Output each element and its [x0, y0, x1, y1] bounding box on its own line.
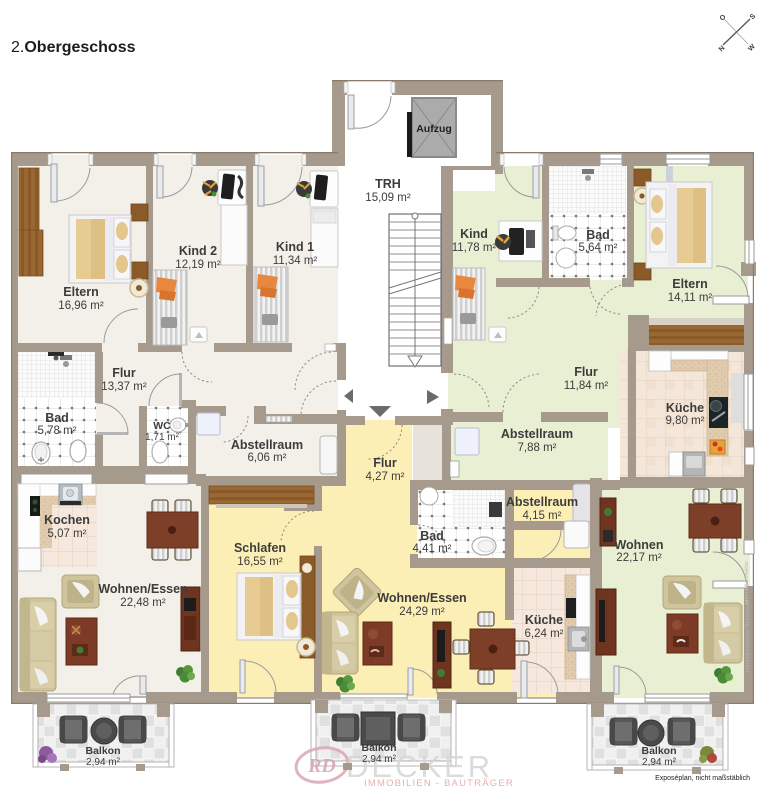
svg-text:Kind 1: Kind 1: [276, 240, 314, 254]
svg-text:Abstellraum: Abstellraum: [501, 427, 573, 441]
svg-text:Bad: Bad: [420, 529, 444, 543]
svg-text:Aufzug: Aufzug: [416, 123, 452, 135]
svg-text:Balkon: Balkon: [361, 742, 396, 754]
svg-text:5,64 m²: 5,64 m²: [579, 242, 618, 254]
svg-text:15,09 m²: 15,09 m²: [365, 192, 411, 204]
svg-text:TRH: TRH: [375, 177, 401, 191]
svg-text:2,94 m²: 2,94 m²: [642, 757, 677, 768]
svg-text:Wohnen: Wohnen: [614, 538, 663, 552]
svg-text:16,96 m²: 16,96 m²: [58, 300, 104, 312]
svg-text:Wohnen/Essen: Wohnen/Essen: [377, 591, 466, 605]
svg-text:Schlafen: Schlafen: [234, 541, 286, 555]
svg-text:24,29 m²: 24,29 m²: [399, 606, 445, 618]
svg-text:6,06 m²: 6,06 m²: [248, 452, 287, 464]
svg-text:2,94 m²: 2,94 m²: [86, 757, 121, 768]
svg-text:13,37 m²: 13,37 m²: [101, 381, 147, 393]
svg-text:1,71 m²: 1,71 m²: [145, 432, 180, 443]
svg-text:Kind 2: Kind 2: [179, 244, 217, 258]
svg-text:22,48 m²: 22,48 m²: [120, 597, 166, 609]
svg-text:WC: WC: [153, 420, 171, 432]
svg-text:Bad: Bad: [45, 411, 69, 425]
svg-text:6,24 m²: 6,24 m²: [525, 628, 564, 640]
svg-text:Abstellraum: Abstellraum: [506, 495, 578, 509]
svg-text:4,41 m²: 4,41 m²: [413, 543, 452, 555]
svg-text:Balkon: Balkon: [641, 745, 676, 757]
svg-text:2,94 m²: 2,94 m²: [362, 754, 397, 765]
svg-text:Küche: Küche: [666, 401, 704, 415]
svg-text:Flur: Flur: [373, 456, 397, 470]
svg-text:Eltern: Eltern: [63, 285, 98, 299]
svg-text:Kind: Kind: [460, 227, 488, 241]
svg-text:22,17 m²: 22,17 m²: [616, 552, 662, 564]
svg-text:9,80 m²: 9,80 m²: [666, 415, 705, 427]
svg-text:16,55 m²: 16,55 m²: [237, 556, 283, 568]
svg-text:Flur: Flur: [574, 365, 598, 379]
svg-text:4,27 m²: 4,27 m²: [366, 471, 405, 483]
svg-text:14,11 m²: 14,11 m²: [668, 292, 713, 304]
svg-text:11,34 m²: 11,34 m²: [273, 255, 318, 267]
svg-text:12,19 m²: 12,19 m²: [175, 259, 221, 271]
svg-text:11,78 m²: 11,78 m²: [452, 242, 497, 254]
svg-text:RD: RD: [307, 755, 336, 777]
svg-text:Exposéplan, nicht maßstäblich: Exposéplan, nicht maßstäblich: [655, 775, 750, 782]
svg-text:IMMOBILIEN - BAUTRÄGER: IMMOBILIEN - BAUTRÄGER: [364, 778, 514, 789]
svg-text:7,88 m²: 7,88 m²: [518, 442, 557, 454]
svg-text:2.Obergeschoss: 2.Obergeschoss: [11, 39, 136, 56]
svg-text:Abstellraum: Abstellraum: [231, 438, 303, 452]
svg-text:11,84 m²: 11,84 m²: [564, 380, 609, 392]
svg-text:Kochen: Kochen: [44, 513, 90, 527]
svg-text:Immobilienmakler Rottenburg: Immobilienmakler Rottenburg: [745, 600, 751, 672]
svg-text:4,15 m²: 4,15 m²: [523, 510, 562, 522]
svg-text:Bad: Bad: [586, 228, 610, 242]
svg-text:Wohnen/Essen: Wohnen/Essen: [98, 582, 187, 596]
svg-text:Küche: Küche: [525, 613, 563, 627]
svg-text:Flur: Flur: [112, 366, 136, 380]
svg-text:5,78 m²: 5,78 m²: [38, 425, 77, 437]
svg-text:Balkon: Balkon: [85, 745, 120, 757]
svg-text:5,07 m²: 5,07 m²: [48, 528, 87, 540]
svg-text:Eltern: Eltern: [672, 277, 707, 291]
svg-text:Immobilienmakler: Immobilienmakler: [744, 561, 750, 604]
